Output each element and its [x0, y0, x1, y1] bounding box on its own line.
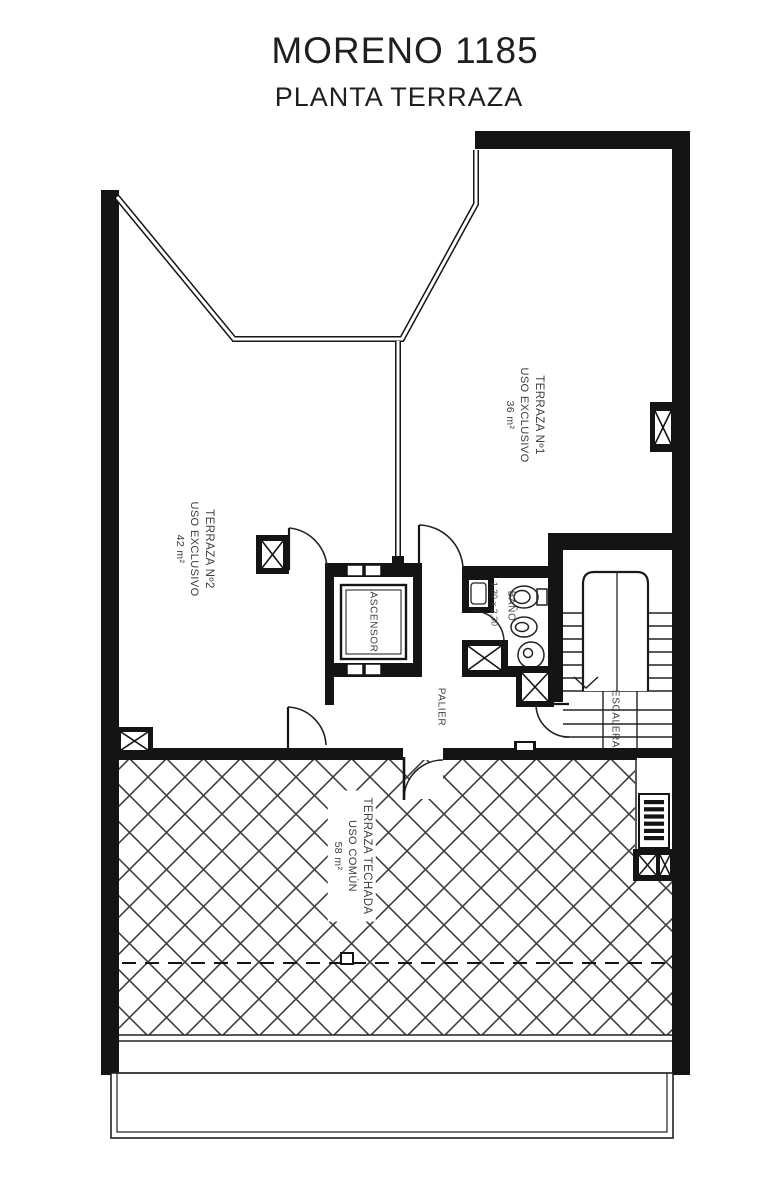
floor-plan-page: MORENO 1185 PLANTA TERRAZA	[0, 0, 775, 1200]
label-terraza-2: TERRAZA Nº2 USO EXCLUSIVO 42 m²	[172, 501, 216, 596]
column-marker	[462, 640, 508, 677]
column-marker	[516, 666, 554, 707]
label-terraza-1: TERRAZA Nº1 USO EXCLUSIVO 36 m²	[502, 367, 546, 462]
door-swing-terraza2-bottom	[288, 707, 326, 748]
column-marker	[116, 727, 153, 755]
label-ascensor: ASCENSOR	[366, 592, 379, 653]
hatch-covered-terrace	[119, 758, 672, 1041]
door-swing-terraza2-top	[289, 528, 327, 570]
room-area: 36 m²	[502, 367, 516, 462]
column-marker	[256, 535, 289, 574]
room-name: TERRAZA TECHADA	[359, 798, 374, 915]
column-marker	[650, 402, 676, 452]
floor-plan-drawing	[0, 0, 775, 1200]
room-name: TERRAZA Nº1	[531, 367, 546, 462]
label-palier: PALIER	[434, 688, 447, 726]
label-bano-dimensions: 1,30 x 2,30	[488, 582, 499, 626]
label-bano: BAÑO	[504, 591, 517, 622]
room-use: USO COMÚN	[344, 798, 359, 915]
door-swing-stairs	[535, 704, 569, 737]
room-use: USO EXCLUSIVO	[516, 367, 531, 462]
room-use: USO EXCLUSIVO	[186, 501, 201, 596]
room-area: 42 m²	[172, 501, 186, 596]
room-name: TERRAZA Nº2	[201, 501, 216, 596]
door-swing-terraza1	[419, 525, 463, 570]
label-escalera: ESCALERA	[608, 690, 621, 748]
drain-fixture	[518, 642, 544, 668]
label-terraza-techada: TERRAZA TECHADA USO COMÚN 58 m²	[328, 791, 376, 922]
bottom-slab-edge	[111, 1073, 673, 1138]
stair-void-railing	[583, 572, 648, 691]
vent-grille	[633, 794, 672, 881]
parapet-railing	[117, 150, 476, 556]
room-area: 58 m²	[330, 798, 344, 915]
